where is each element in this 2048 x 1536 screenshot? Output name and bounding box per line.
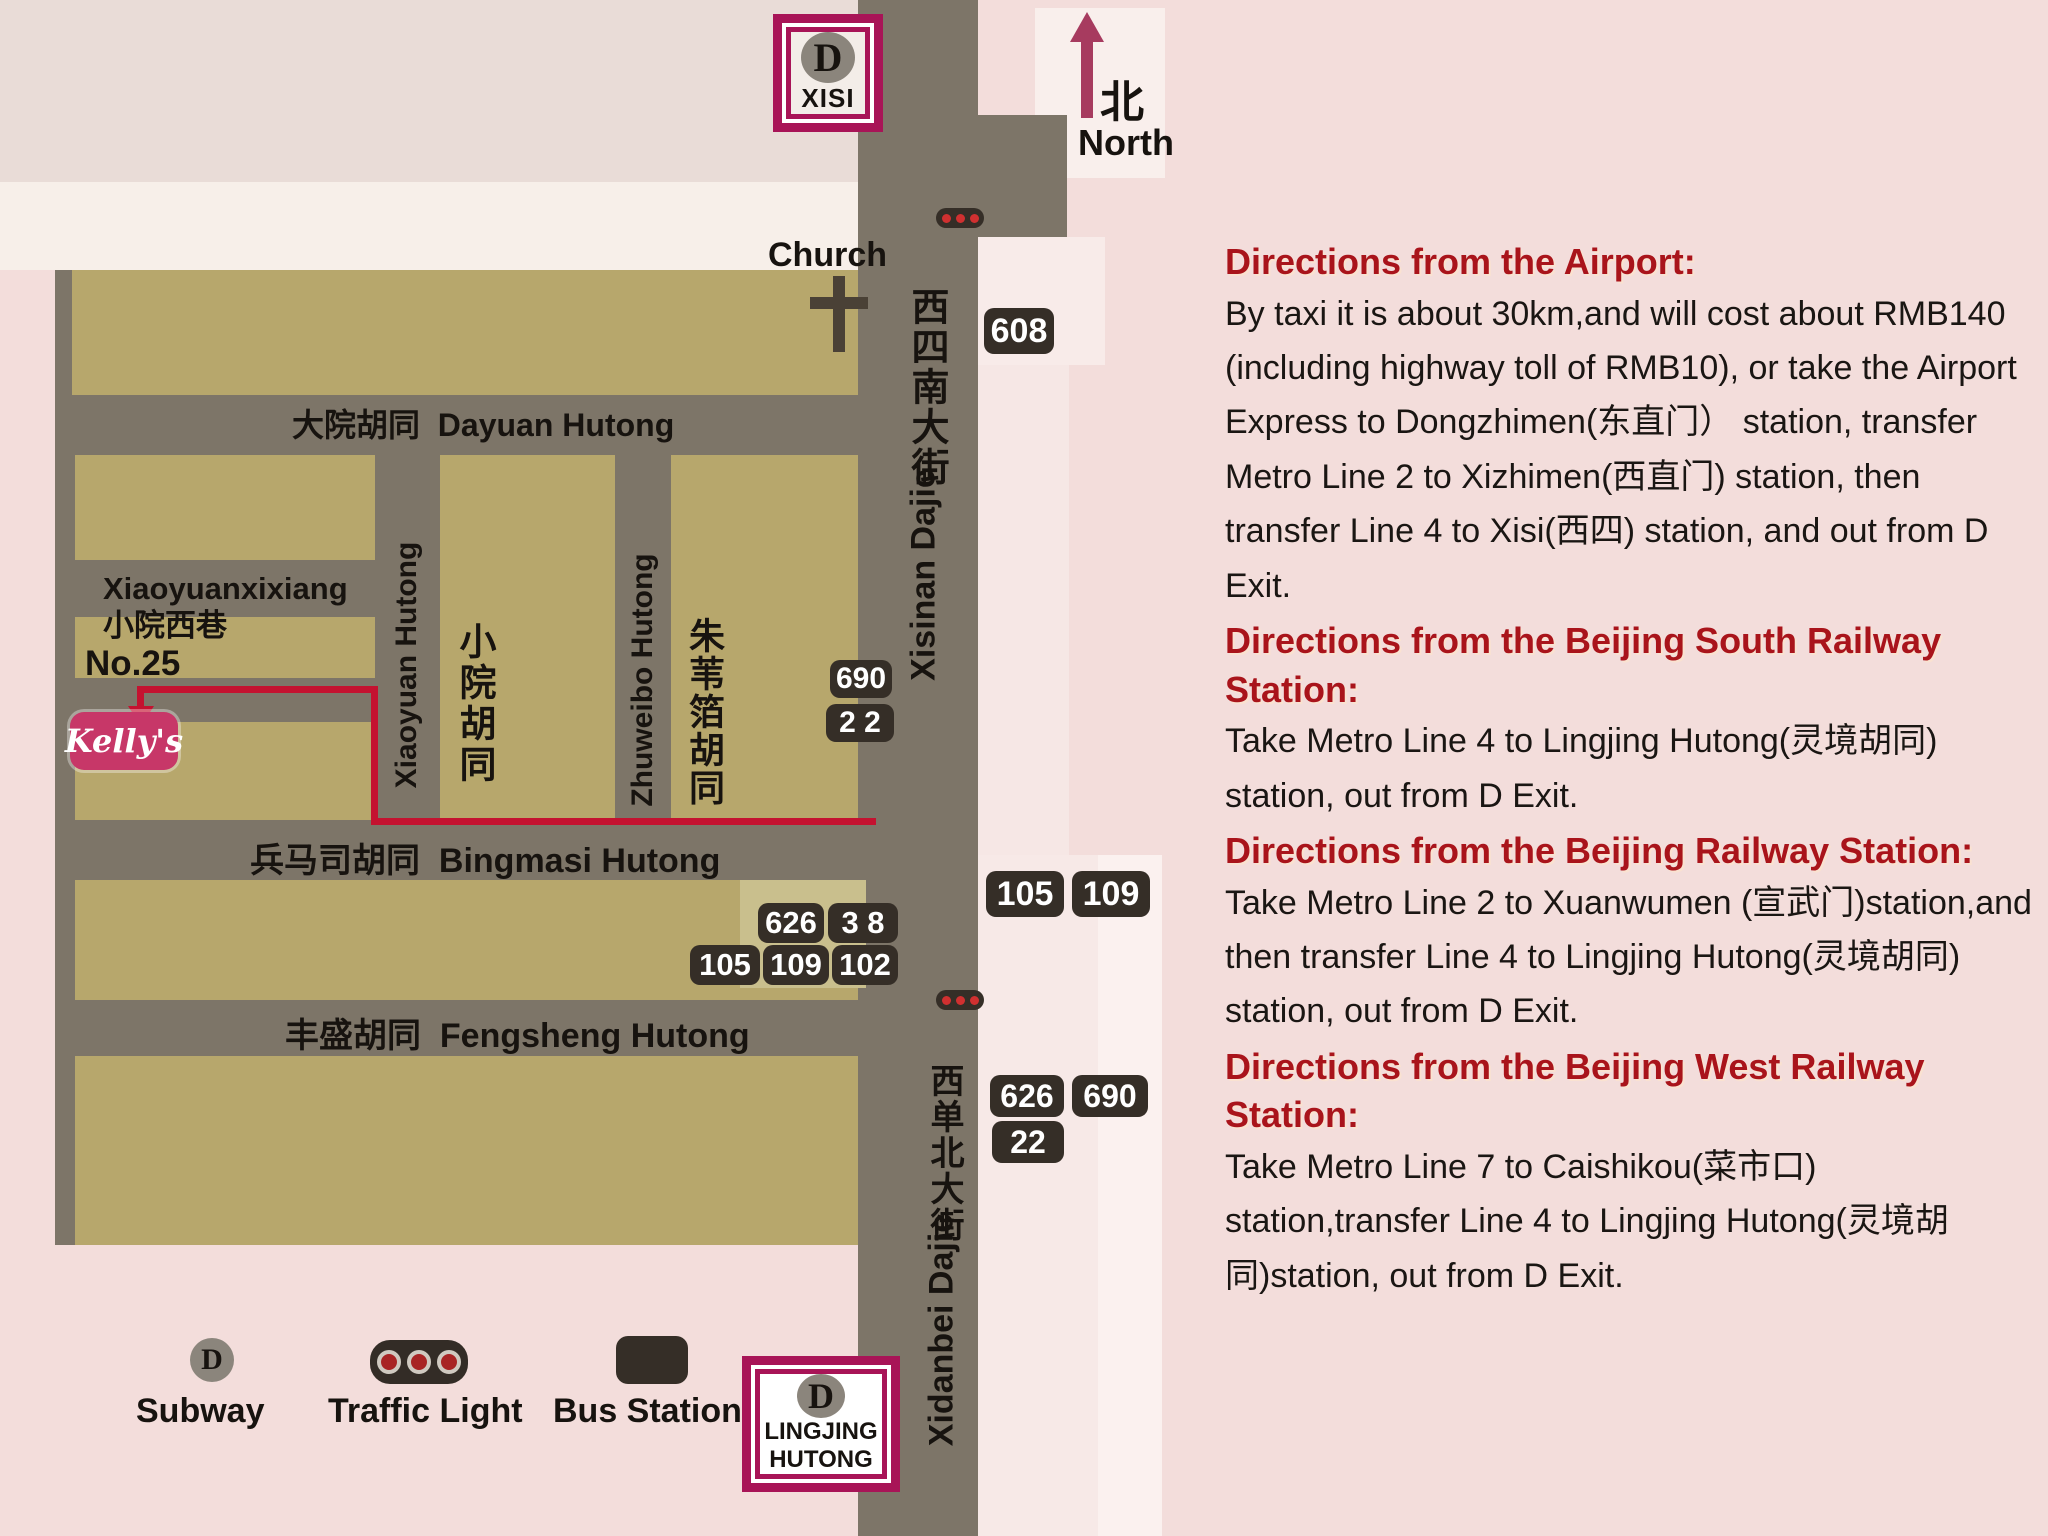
kellys-label: Kelly's (65, 722, 183, 760)
legend-traffic-light-label: Traffic Light (328, 1392, 523, 1431)
lingjing-station-name-line2: HUTONG (769, 1446, 873, 1474)
bus-route-badge-109: 109 (1072, 871, 1150, 917)
traffic-light-icon (936, 208, 984, 228)
legend-traffic-light-icon (370, 1340, 468, 1384)
street-label-bingmasi-en: Bingmasi Hutong (439, 842, 720, 880)
subway-exit-letter: D (814, 34, 843, 81)
sidewalk-strip (977, 365, 1069, 855)
legend-bus-station-label: Bus Station (553, 1392, 742, 1431)
xisi-station-name: XISI (801, 83, 854, 114)
legend-bus-station-icon (616, 1336, 688, 1384)
bus-route-badge-22: 22 (992, 1121, 1064, 1163)
route-line-vertical-xiaoyuan (371, 686, 378, 825)
directions-airport-heading: Directions from the Airport: (1225, 238, 2040, 287)
traffic-light-icon (936, 990, 984, 1010)
city-block (72, 270, 858, 395)
kellys-courtyard-badge: Kelly's (70, 712, 178, 770)
xisi-station-marker: D XISI (773, 14, 883, 132)
north-label-en: North (1078, 122, 1174, 164)
church-label: Church (768, 236, 887, 275)
white-band (0, 182, 858, 270)
bus-route-badge-690: 690 (830, 660, 892, 698)
street-label-bingmasi: 兵马司胡同 Bingmasi Hutong (250, 833, 720, 882)
directions-beijing-south-railway: Directions from the Beijing South Railwa… (1225, 617, 2040, 823)
directions-beijing-west-heading: Directions from the Beijing West Railway… (1225, 1043, 2040, 1140)
legend-subway-label: Subway (136, 1392, 264, 1431)
lingjing-hutong-station-marker: D LINGJING HUTONG (742, 1356, 900, 1492)
street-label-dayuan-en: Dayuan Hutong (438, 407, 674, 443)
street-label-bingmasi-zh: 兵马司胡同 (250, 842, 420, 880)
bus-route-badge-690: 690 (1072, 1075, 1148, 1117)
street-label-zhuweibo-en: Zhuweibo Hutong (626, 553, 660, 806)
street-label-zhuweibo-zh: 朱苇箔胡同 (678, 617, 730, 807)
city-block (75, 455, 375, 560)
subway-exit-letter: D (808, 1375, 834, 1417)
directions-beijing-south-body: Take Metro Line 4 to Lingjing Hutong(灵境胡… (1225, 714, 2040, 823)
directions-beijing-railway-heading: Directions from the Beijing Railway Stat… (1225, 827, 2040, 876)
subway-exit-d-icon: D (797, 1374, 845, 1418)
street-label-fengsheng-en: Fengsheng Hutong (440, 1017, 750, 1055)
street-label-xisinan-zh: 西四南大街 (899, 287, 954, 487)
church-cross-icon (810, 276, 868, 352)
street-label-xiaoyuan-en: Xiaoyuan Hutong (390, 542, 424, 789)
main-road-intersection-stub (977, 115, 1067, 237)
street-label-xisinan-en: Xisinan Dajie (905, 469, 944, 681)
route-line-horizontal-lane (143, 686, 378, 693)
directions-airport-body: By taxi it is about 30km,and will cost a… (1225, 287, 2040, 613)
sidewalk-strip-bright (1098, 855, 1162, 1536)
street-label-xiaoyuanxixiang-en: Xiaoyuanxixiang (103, 570, 348, 607)
bus-route-badge-626: 626 (990, 1075, 1064, 1117)
legend-subway-icon: D (190, 1338, 234, 1382)
route-line-horizontal-bingmasi (371, 818, 876, 825)
directions-beijing-south-heading: Directions from the Beijing South Railwa… (1225, 617, 2040, 714)
legend-subway-letter: D (201, 1343, 223, 1377)
north-arrow-shaft (1081, 38, 1093, 118)
street-label-xiaoyuan-zh: 小院胡同 (447, 622, 501, 786)
street-label-xidanbei-en: Xidanbei Dajie (923, 1214, 962, 1446)
house-number-label: No.25 (85, 644, 180, 684)
directions-beijing-west-railway: Directions from the Beijing West Railway… (1225, 1043, 2040, 1303)
north-label-zh: 北 (1100, 66, 1144, 130)
street-label-fengsheng-zh: 丰盛胡同 (285, 1017, 421, 1055)
subway-exit-d-icon: D (801, 32, 855, 83)
hotel-location-map-page: 大院胡同 Dayuan Hutong 兵马司胡同 Bingmasi Hutong… (0, 0, 2048, 1536)
bus-route-badge-626: 626 (758, 903, 824, 943)
route-arrow-stub (137, 686, 144, 708)
street-label-fengsheng: 丰盛胡同 Fengsheng Hutong (285, 1008, 750, 1057)
directions-beijing-railway: Directions from the Beijing Railway Stat… (1225, 827, 2040, 1039)
bus-route-badge-109: 109 (763, 945, 829, 985)
directions-beijing-west-body: Take Metro Line 7 to Caishikou(菜市口) stat… (1225, 1140, 2040, 1303)
topleft-background (0, 0, 858, 182)
street-label-dayuan-zh: 大院胡同 (292, 407, 420, 443)
bus-route-badge-105: 105 (690, 945, 760, 985)
directions-panel: Directions from the Airport: By taxi it … (1225, 238, 2040, 1307)
bus-route-badge-22: 2 2 (826, 704, 894, 742)
lingjing-station-name-line1: LINGJING (764, 1418, 877, 1446)
bus-route-badge-608: 608 (984, 308, 1054, 354)
bus-route-badge-105: 105 (986, 871, 1064, 917)
city-block (75, 1056, 858, 1245)
bus-route-badge-102: 102 (832, 945, 898, 985)
street-label-dayuan: 大院胡同 Dayuan Hutong (292, 400, 674, 446)
directions-beijing-railway-body: Take Metro Line 2 to Xuanwumen (宣武门)stat… (1225, 876, 2040, 1039)
street-label-xiaoyuanxixiang-zh: 小院西巷 (103, 607, 348, 644)
directions-airport: Directions from the Airport: By taxi it … (1225, 238, 2040, 613)
bus-route-badge-3-8: 3 8 (828, 903, 898, 943)
street-label-xiaoyuanxixiang: Xiaoyuanxixiang 小院西巷 (103, 570, 348, 644)
